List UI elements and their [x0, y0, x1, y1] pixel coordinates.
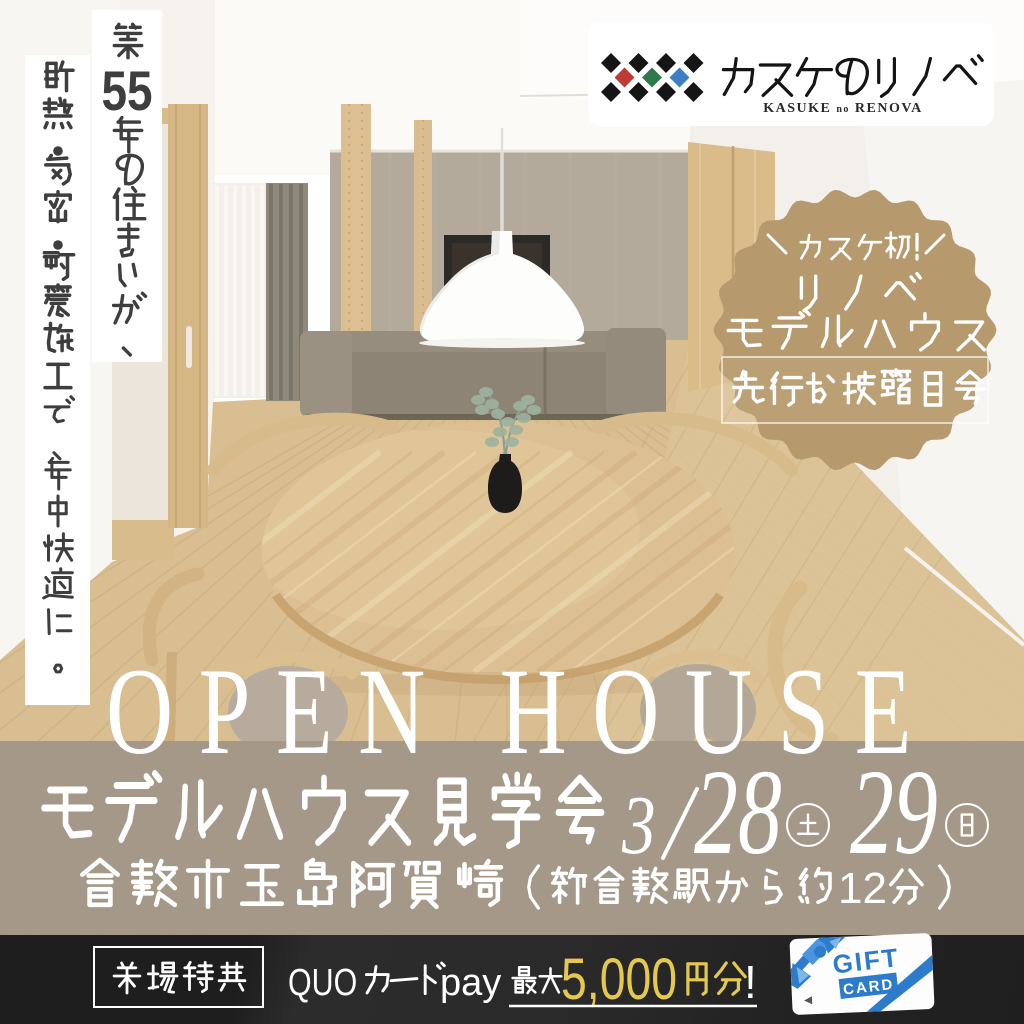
svg-text:12: 12 [838, 864, 887, 913]
svg-text:29: 29 [850, 744, 938, 879]
svg-text:28: 28 [694, 744, 782, 879]
svg-text:!: ! [744, 956, 757, 1008]
svg-text:pay: pay [440, 962, 501, 1004]
svg-text:5,000: 5,000 [561, 947, 677, 1012]
svg-text:3: 3 [621, 779, 655, 872]
svg-text:QUO: QUO [288, 962, 357, 1004]
